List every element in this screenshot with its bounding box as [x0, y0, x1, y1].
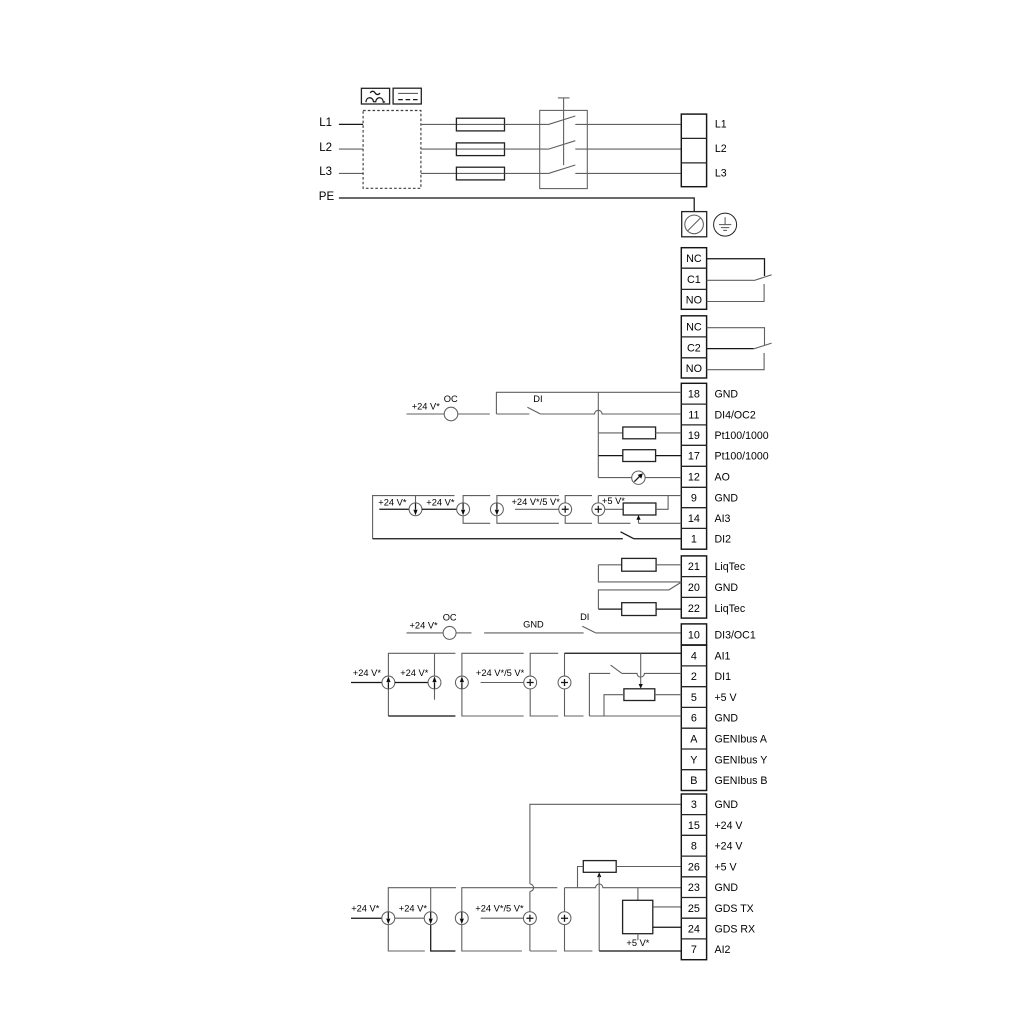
svg-text:+5 V*: +5 V* [602, 496, 625, 506]
svg-text:1: 1 [691, 534, 697, 546]
svg-text:DI3/OC1: DI3/OC1 [715, 629, 756, 641]
svg-text:+24 V*: +24 V* [399, 904, 428, 914]
svg-text:10: 10 [688, 629, 700, 641]
svg-text:AI3: AI3 [715, 513, 731, 525]
svg-text:+5 V: +5 V [715, 692, 738, 704]
svg-text:DI: DI [533, 394, 542, 404]
svg-text:20: 20 [688, 582, 700, 594]
svg-text:22: 22 [688, 603, 700, 615]
svg-text:+24 V*: +24 V* [412, 402, 441, 412]
svg-text:17: 17 [688, 451, 700, 463]
svg-text:Y: Y [690, 754, 697, 766]
svg-text:LiqTec: LiqTec [715, 561, 746, 573]
svg-text:DI2: DI2 [715, 534, 732, 546]
svg-text:+24 V: +24 V [715, 841, 744, 853]
svg-text:AI1: AI1 [715, 650, 731, 662]
svg-text:PE: PE [319, 191, 335, 203]
svg-text:GND: GND [715, 389, 739, 401]
svg-text:DI4/OC2: DI4/OC2 [715, 409, 756, 421]
svg-text:L3: L3 [715, 167, 727, 179]
svg-text:GND: GND [715, 882, 739, 894]
svg-text:GENIbus B: GENIbus B [715, 775, 768, 787]
svg-text:L1: L1 [319, 117, 332, 129]
svg-text:+24 V*/5 V*: +24 V*/5 V* [512, 497, 561, 507]
svg-text:9: 9 [691, 492, 697, 504]
svg-text:+24 V*: +24 V* [426, 498, 455, 508]
svg-text:11: 11 [688, 409, 699, 421]
svg-text:3: 3 [691, 799, 697, 811]
svg-text:4: 4 [691, 650, 697, 662]
svg-text:+24 V*: +24 V* [410, 620, 439, 630]
svg-text:+24 V*: +24 V* [378, 498, 407, 508]
svg-text:GND: GND [715, 713, 739, 725]
svg-text:DI: DI [580, 612, 589, 622]
svg-text:+24 V*: +24 V* [400, 668, 429, 678]
svg-text:GDS RX: GDS RX [715, 924, 756, 936]
svg-text:GDS TX: GDS TX [715, 903, 754, 915]
svg-text:NC: NC [686, 253, 702, 265]
svg-text:L2: L2 [715, 143, 727, 155]
svg-text:24: 24 [688, 924, 700, 936]
svg-text:NO: NO [686, 294, 702, 306]
svg-text:L2: L2 [319, 142, 332, 154]
svg-text:21: 21 [688, 561, 700, 573]
svg-text:15: 15 [688, 820, 700, 832]
svg-text:Pt100/1000: Pt100/1000 [715, 430, 769, 442]
svg-text:Pt100/1000: Pt100/1000 [715, 451, 769, 463]
svg-text:LiqTec: LiqTec [715, 603, 746, 615]
svg-text:NC: NC [686, 321, 702, 333]
svg-text:B: B [690, 775, 697, 787]
svg-text:12: 12 [688, 472, 700, 484]
svg-text:+24 V: +24 V [715, 820, 744, 832]
svg-text:6: 6 [691, 713, 697, 725]
svg-text:19: 19 [688, 430, 700, 442]
svg-text:C1: C1 [687, 274, 701, 286]
svg-text:+24 V*/5 V*: +24 V*/5 V* [475, 904, 524, 914]
svg-text:18: 18 [688, 389, 700, 401]
svg-text:GENIbus Y: GENIbus Y [715, 754, 768, 766]
svg-text:+24 V*: +24 V* [351, 904, 380, 914]
svg-text:+24 V*/5 V*: +24 V*/5 V* [476, 668, 525, 678]
svg-text:A: A [690, 734, 698, 746]
svg-text:25: 25 [688, 903, 700, 915]
svg-text:L1: L1 [715, 118, 727, 130]
svg-text:14: 14 [688, 513, 700, 525]
svg-text:GND: GND [715, 492, 739, 504]
svg-text:AI2: AI2 [715, 944, 731, 956]
svg-text:NO: NO [686, 363, 702, 375]
svg-text:C2: C2 [687, 342, 701, 354]
svg-text:+24 V*: +24 V* [353, 668, 382, 678]
svg-text:+5 V: +5 V [715, 861, 738, 873]
svg-text:GENIbus A: GENIbus A [715, 734, 768, 746]
svg-text:5: 5 [691, 692, 697, 704]
svg-text:7: 7 [691, 944, 697, 956]
svg-text:AO: AO [715, 472, 730, 484]
svg-text:26: 26 [688, 861, 700, 873]
svg-text:GND: GND [715, 582, 739, 594]
svg-text:GND: GND [715, 799, 739, 811]
svg-text:OC: OC [444, 394, 458, 404]
svg-text:DI1: DI1 [715, 671, 732, 683]
svg-text:GND: GND [523, 620, 544, 630]
svg-text:OC: OC [443, 613, 457, 623]
svg-text:23: 23 [688, 882, 700, 894]
svg-text:2: 2 [691, 671, 697, 683]
svg-text:8: 8 [691, 841, 697, 853]
svg-text:L3: L3 [319, 166, 332, 178]
